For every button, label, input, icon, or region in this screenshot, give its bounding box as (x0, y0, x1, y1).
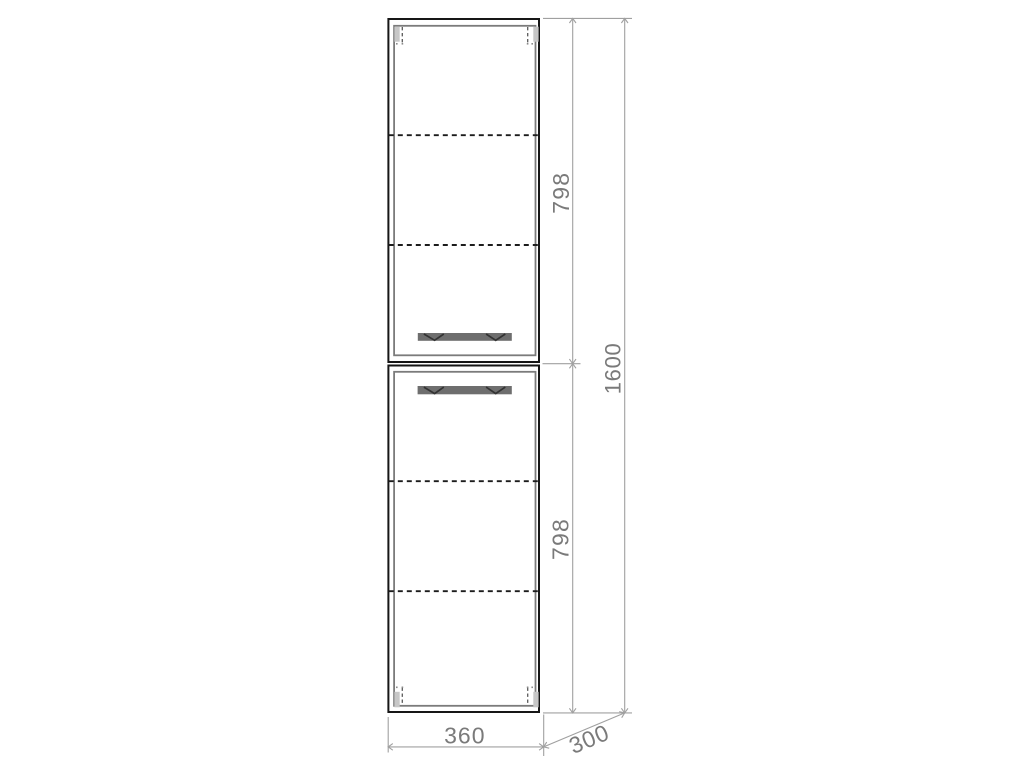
svg-text:300: 300 (565, 719, 613, 759)
svg-text:1600: 1600 (601, 343, 626, 395)
svg-text:798: 798 (548, 172, 574, 214)
svg-text:798: 798 (548, 518, 574, 560)
svg-text:360: 360 (444, 722, 485, 748)
